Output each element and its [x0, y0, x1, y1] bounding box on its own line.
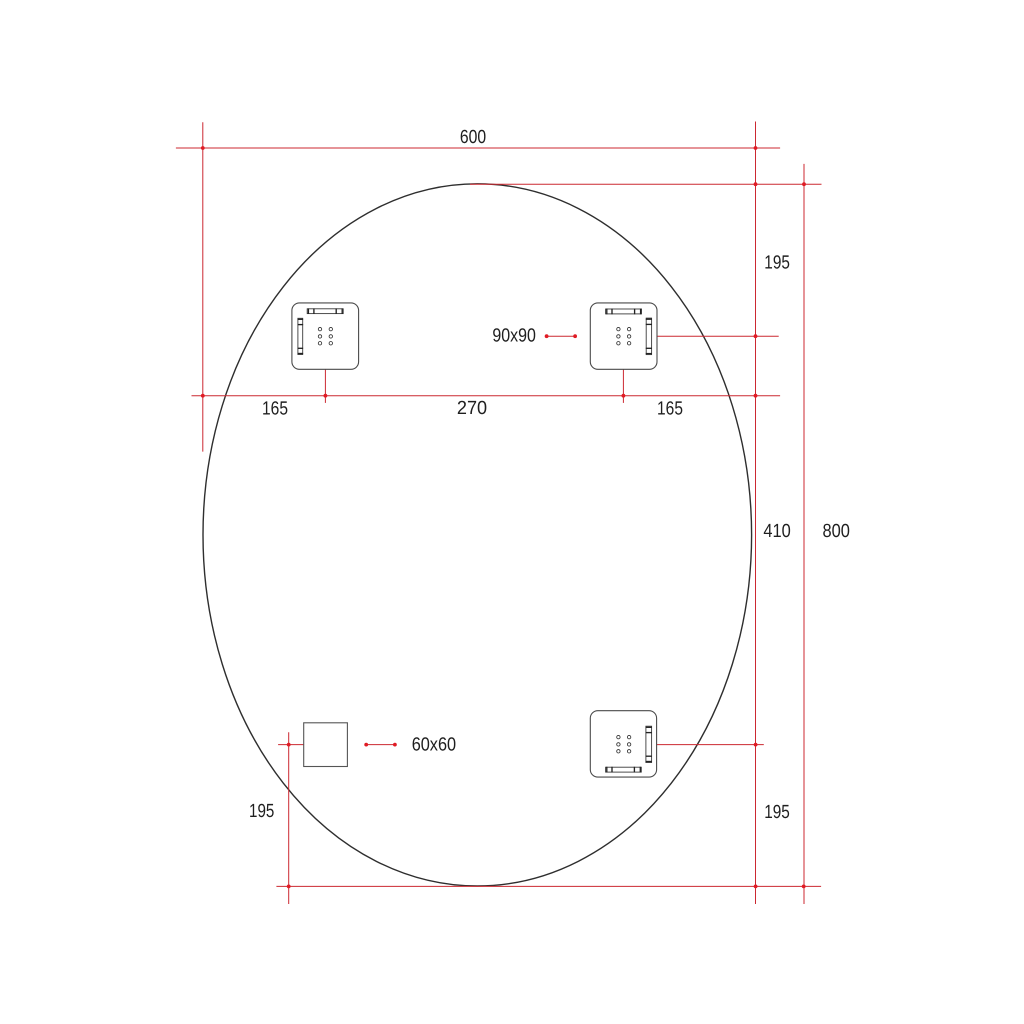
svg-text:270: 270 [457, 398, 487, 419]
svg-text:165: 165 [657, 399, 683, 420]
svg-text:195: 195 [764, 802, 790, 823]
svg-text:90x90: 90x90 [492, 325, 536, 346]
svg-text:800: 800 [823, 521, 850, 542]
svg-text:165: 165 [262, 399, 288, 420]
svg-text:60x60: 60x60 [412, 735, 456, 756]
svg-text:600: 600 [460, 127, 486, 148]
svg-text:195: 195 [249, 801, 274, 822]
svg-text:195: 195 [764, 253, 790, 274]
svg-text:410: 410 [763, 521, 790, 542]
